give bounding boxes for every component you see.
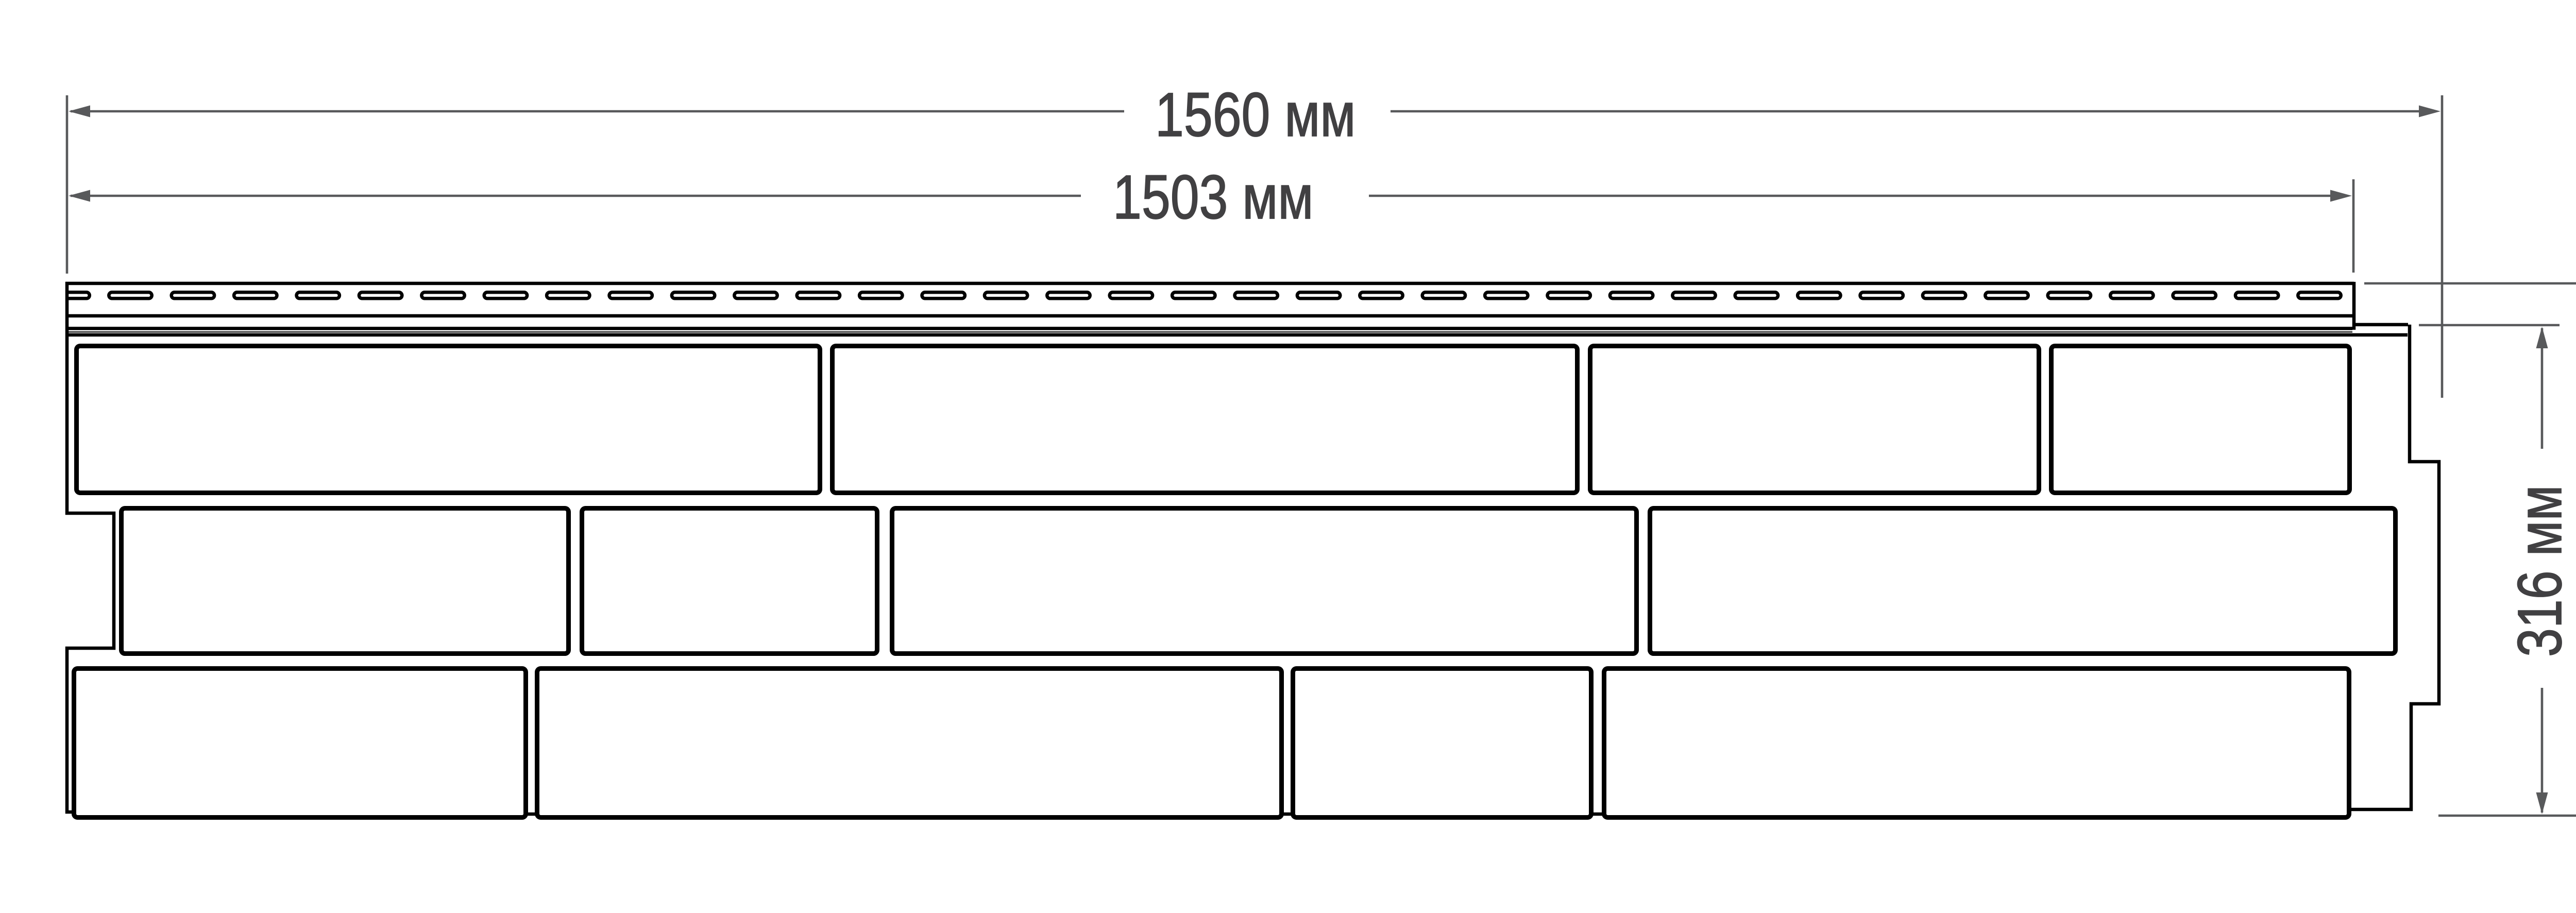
svg-text:316 мм: 316 мм <box>2504 485 2574 657</box>
svg-text:1560 мм: 1560 мм <box>1155 79 1355 149</box>
svg-text:1503 мм: 1503 мм <box>1113 162 1313 232</box>
